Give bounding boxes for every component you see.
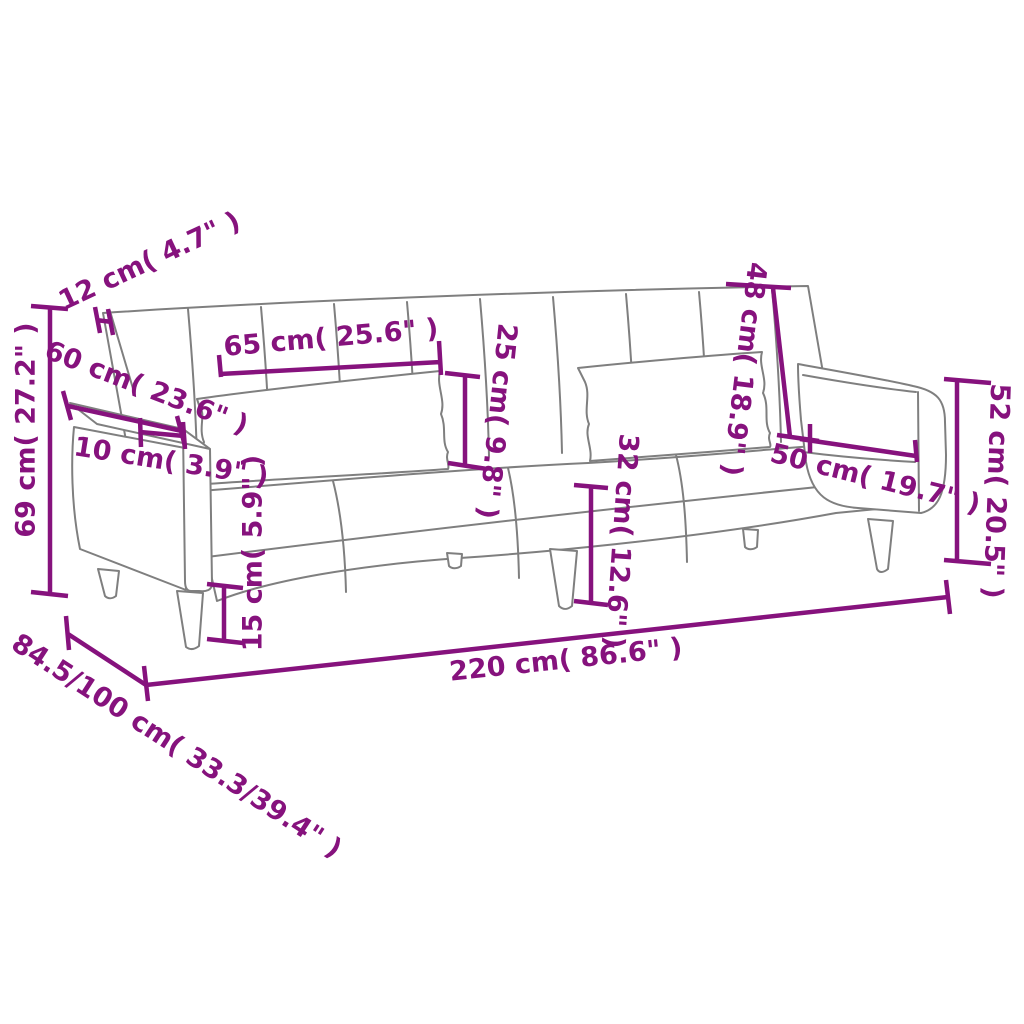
- dim-total-depth-label: 84.5/100 cm( 33.3/39.4" ): [6, 628, 347, 865]
- leg-right-back-tab: [743, 529, 758, 549]
- leg-seat-front: [550, 549, 577, 609]
- leg-seat-back-tab: [447, 553, 462, 568]
- sofa-dimension-illustration: 12 cm( 4.7" ) 69 cm( 27.2" ) 60 cm( 23.6…: [0, 0, 1024, 1024]
- leg-right-front: [868, 519, 893, 572]
- dim-armrest-height-label: 52 cm( 20.5" ): [977, 383, 1015, 599]
- leg-left-back: [98, 569, 119, 598]
- leg-left-front: [177, 591, 203, 649]
- dim-total-depth: 84.5/100 cm( 33.3/39.4" ): [6, 616, 347, 865]
- dim-total-height-label: 69 cm( 27.2" ): [11, 322, 42, 537]
- dim-leg-height-label: 15 cm( 5.9" ): [238, 455, 269, 652]
- dim-back-cushion-thickness-label: 12 cm( 4.7" ): [54, 206, 245, 317]
- dim-back-cushion-thickness-line: [95, 307, 113, 335]
- dimension-diagram: 12 cm( 4.7" ) 69 cm( 27.2" ) 60 cm( 23.6…: [0, 0, 1024, 1024]
